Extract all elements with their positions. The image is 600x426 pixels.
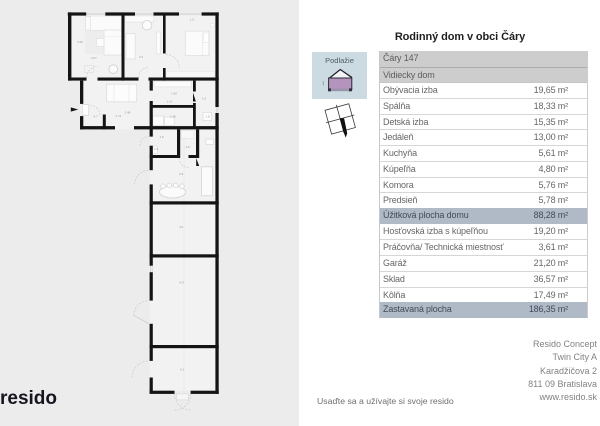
svg-text:1.8: 1.8 bbox=[206, 115, 211, 119]
svg-text:2.74: 2.74 bbox=[116, 114, 122, 118]
svg-text:1.6: 1.6 bbox=[202, 97, 207, 101]
svg-text:3.2: 3.2 bbox=[139, 55, 144, 59]
svg-text:1.6: 1.6 bbox=[190, 18, 195, 22]
svg-text:6.9: 6.9 bbox=[180, 281, 185, 285]
svg-text:1.68: 1.68 bbox=[170, 115, 176, 119]
svg-text:4.1: 4.1 bbox=[180, 368, 185, 372]
svg-text:4.9: 4.9 bbox=[179, 225, 184, 229]
svg-text:4.55: 4.55 bbox=[77, 40, 83, 44]
svg-text:3.67: 3.67 bbox=[91, 56, 97, 60]
svg-text:1.60: 1.60 bbox=[171, 92, 177, 96]
svg-text:4.7: 4.7 bbox=[94, 115, 99, 119]
svg-text:2.9: 2.9 bbox=[179, 172, 184, 176]
svg-text:1.10: 1.10 bbox=[167, 99, 173, 103]
svg-text:4.8: 4.8 bbox=[186, 145, 191, 149]
svg-text:1.9: 1.9 bbox=[154, 147, 159, 151]
svg-text:2.48: 2.48 bbox=[125, 111, 131, 115]
svg-text:1.8: 1.8 bbox=[160, 135, 165, 139]
